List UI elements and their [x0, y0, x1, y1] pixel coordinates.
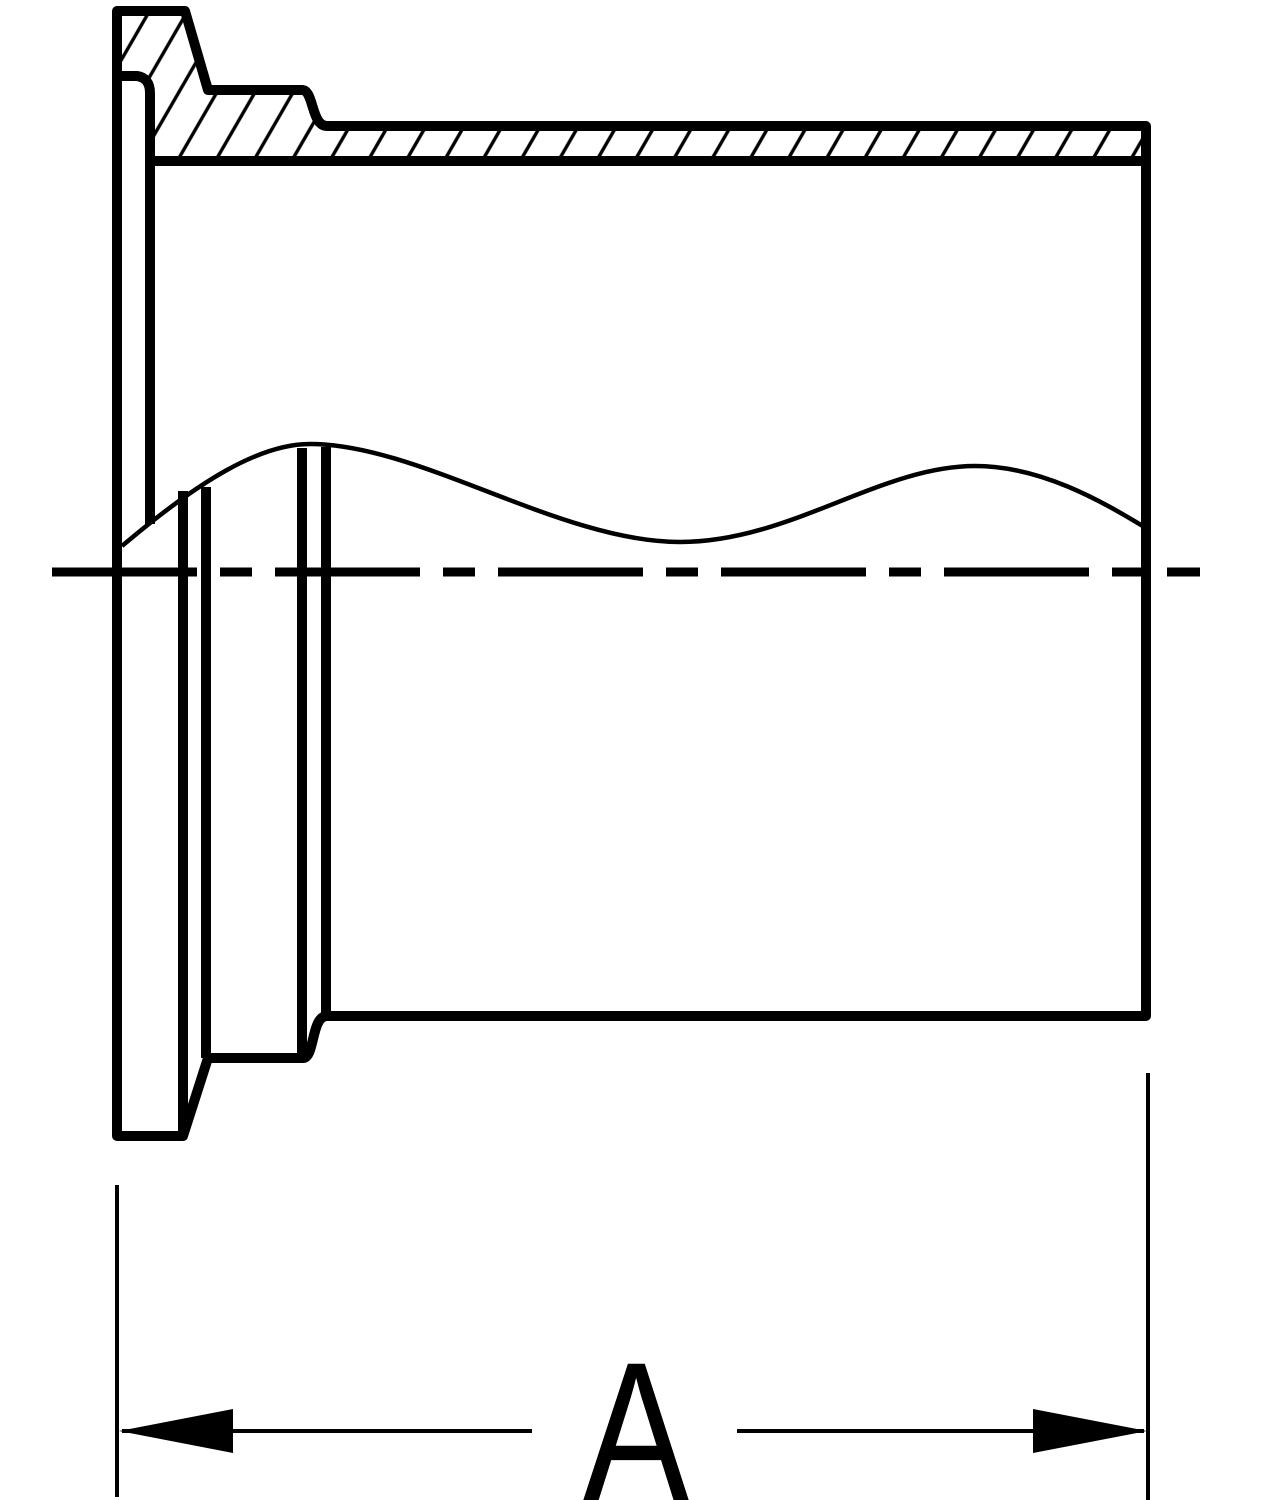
ferrule-section-drawing: A — [0, 0, 1268, 1500]
technical-drawing-sheet: A — [0, 0, 1268, 1500]
dimension-label: A — [583, 1321, 689, 1500]
drawing-background — [0, 0, 1268, 1500]
